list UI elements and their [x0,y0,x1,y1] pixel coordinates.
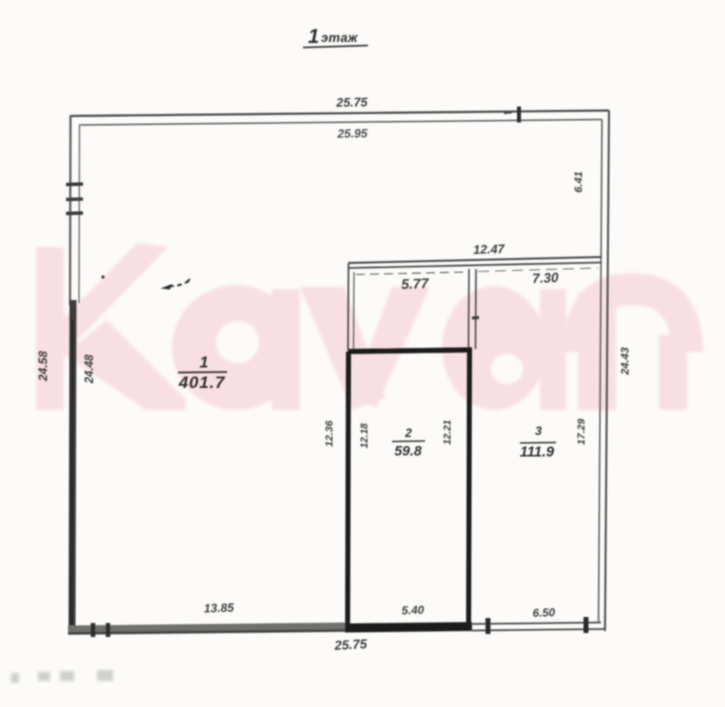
svg-text:12.47: 12.47 [473,242,506,257]
svg-text:7.30: 7.30 [532,270,559,286]
svg-text:6.50: 6.50 [532,607,555,620]
svg-text:24.43: 24.43 [620,347,632,376]
svg-text:6.41: 6.41 [573,171,585,192]
svg-text:111.9: 111.9 [520,445,554,461]
svg-text:5.77: 5.77 [401,275,430,292]
svg-text:12.18: 12.18 [360,423,371,448]
svg-text:5.40: 5.40 [401,605,424,618]
svg-text:3: 3 [535,424,542,438]
svg-text:25.75: 25.75 [333,636,368,653]
svg-text:24.48: 24.48 [84,354,96,384]
svg-text:25.75: 25.75 [335,95,369,110]
svg-text:59.8: 59.8 [394,443,421,459]
svg-text:13.85: 13.85 [204,600,235,615]
svg-text:этаж: этаж [321,30,359,45]
svg-text:1: 1 [200,355,209,372]
svg-text:12.21: 12.21 [442,419,453,444]
svg-text:17.29: 17.29 [576,419,588,445]
svg-text:24.58: 24.58 [36,351,50,382]
svg-text:2: 2 [404,426,412,440]
svg-text:25.95: 25.95 [336,126,368,141]
svg-text:1: 1 [308,26,319,48]
svg-text:12.36: 12.36 [323,420,335,446]
svg-text:401.7: 401.7 [178,373,226,392]
